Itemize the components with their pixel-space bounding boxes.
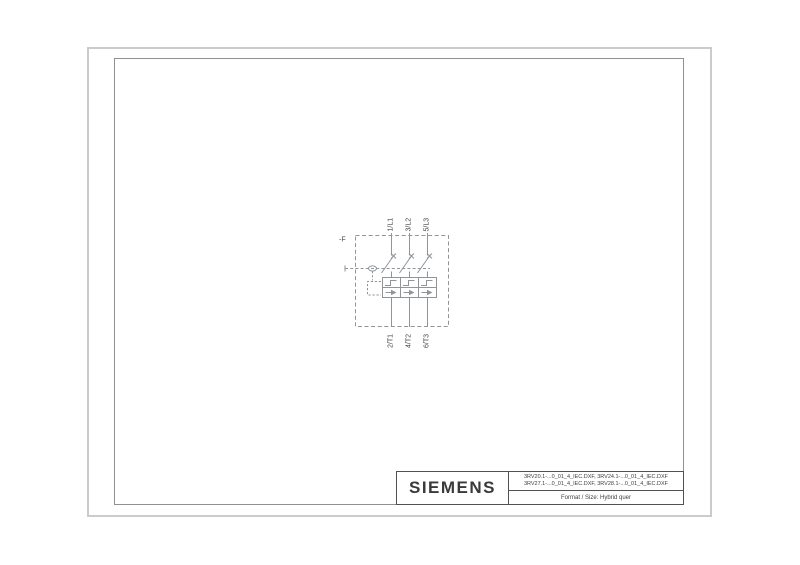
pole1-magnetic-trip-arrow-icon bbox=[391, 290, 397, 295]
siemens-logo-cell: SIEMENS bbox=[397, 472, 509, 504]
trip-linkage-bracket bbox=[368, 282, 382, 296]
terminal-label-bottom-2: 4/T2 bbox=[406, 334, 413, 348]
title-block: SIEMENS 3RV20.1-...0_01_4_IEC.DXF, 3RV24… bbox=[396, 471, 684, 505]
pole1-thermal-overload-symbol bbox=[385, 281, 397, 286]
dxf-filenames-line2: 3RV27.1-...0_01_4_IEC.DXF, 3RV28.1-...0_… bbox=[524, 481, 668, 488]
pole3-contact-lever bbox=[418, 255, 431, 274]
pole3-thermal-overload-symbol bbox=[421, 281, 433, 286]
siemens-logo: SIEMENS bbox=[409, 478, 496, 498]
drawing-sheet: -F 1/L1 3/L2 5/L3 2/T1 4/T2 6/T3 SIEMENS… bbox=[0, 0, 800, 565]
pole3-magnetic-trip-arrow-icon bbox=[427, 290, 433, 295]
terminal-label-bottom-3: 6/T3 bbox=[424, 334, 431, 348]
title-block-info-column: 3RV20.1-...0_01_4_IEC.DXF, 3RV24.1-...0_… bbox=[509, 472, 683, 504]
dxf-filenames-line1: 3RV20.1-...0_01_4_IEC.DXF, 3RV24.1-...0_… bbox=[524, 474, 668, 481]
pole1-contact-lever bbox=[382, 255, 395, 274]
terminal-label-top-1: 1/L1 bbox=[388, 218, 395, 232]
circuit-schematic: -F 1/L1 3/L2 5/L3 2/T1 4/T2 6/T3 bbox=[336, 200, 456, 355]
format-size-cell: Format / Size: Hybrid quer bbox=[509, 491, 683, 504]
pole2-magnetic-trip-arrow-icon bbox=[409, 290, 415, 295]
pole2-thermal-overload-symbol bbox=[403, 281, 415, 286]
terminal-label-bottom-1: 2/T1 bbox=[388, 334, 395, 348]
dxf-filenames-cell: 3RV20.1-...0_01_4_IEC.DXF, 3RV24.1-...0_… bbox=[509, 472, 683, 491]
terminal-label-top-3: 5/L3 bbox=[424, 218, 431, 232]
pole2-contact-lever bbox=[400, 255, 413, 274]
terminal-label-top-2: 3/L2 bbox=[406, 218, 413, 232]
device-designation-label: -F bbox=[339, 237, 346, 244]
device-enclosure-dashed-box bbox=[356, 236, 449, 327]
